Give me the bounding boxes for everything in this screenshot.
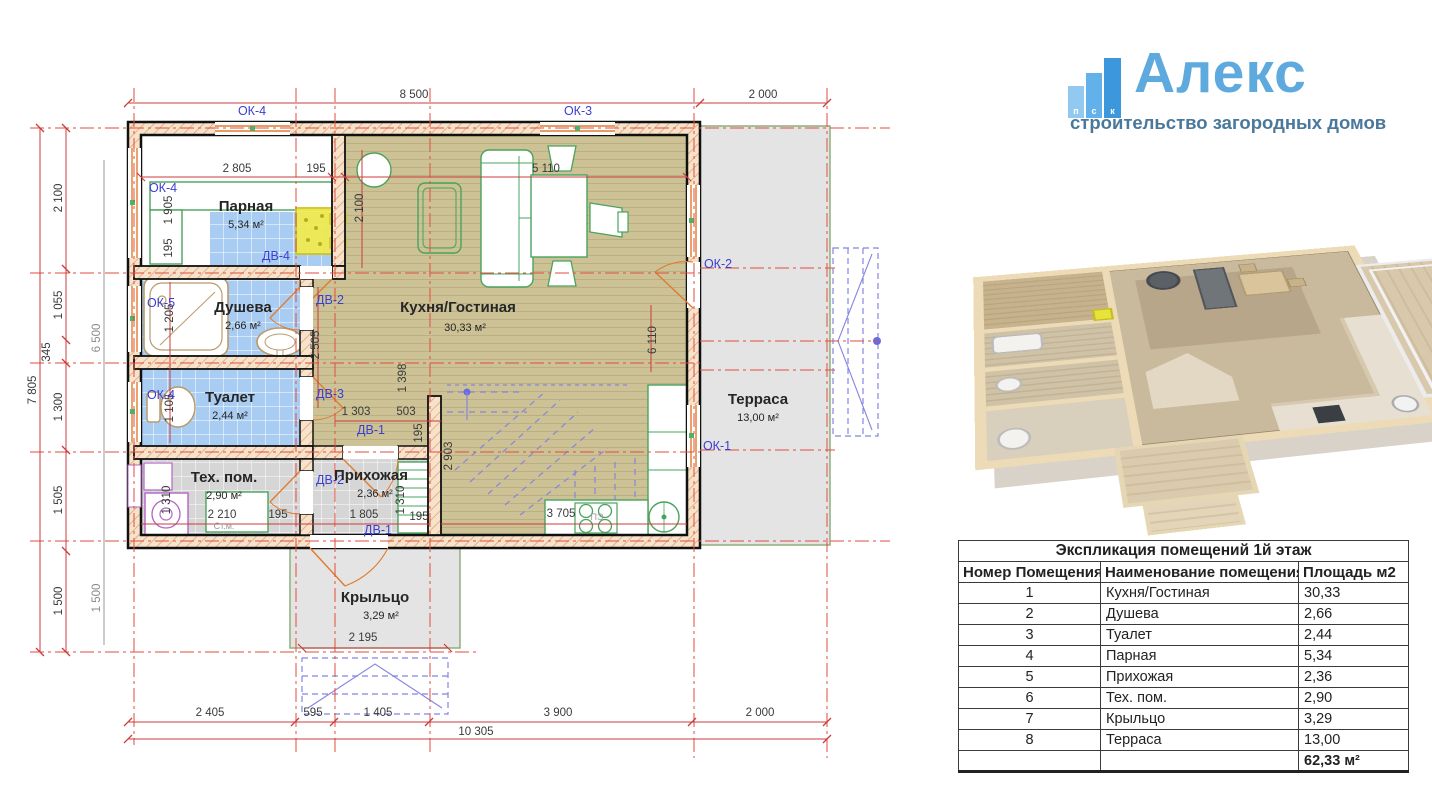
room-area: 2,36 м² xyxy=(357,488,393,500)
psk-logo-icon: п с к xyxy=(1068,56,1124,118)
room-area: 30,33 м² xyxy=(444,322,486,334)
company-name: Алекс xyxy=(1134,40,1307,106)
room-area: 2,44 м² xyxy=(212,410,248,422)
table-row: 6 Тех. пом. 2,90 xyxy=(959,688,1409,709)
3d-stairs xyxy=(1142,350,1239,409)
company-logo: п с к Алекс строительство загородных дом… xyxy=(1064,52,1404,142)
house-3d-preview xyxy=(948,148,1432,538)
roof-outline xyxy=(833,248,878,436)
label-dv1: ДВ-1 xyxy=(357,423,385,437)
room-name: Кухня/Гостиная xyxy=(400,299,516,316)
dim-label: 8 500 xyxy=(400,89,429,101)
room-name: Парная xyxy=(219,198,273,215)
dim-label: 1 500 xyxy=(91,584,103,613)
room-name: Тех. пом. xyxy=(191,469,258,486)
dim-label: 2 805 xyxy=(223,163,252,175)
dim-label: 6 500 xyxy=(91,324,103,353)
room-area: 13,00 м² xyxy=(737,412,779,424)
dim-label: 7 805 xyxy=(27,376,39,405)
dim-label: 503 xyxy=(396,406,415,418)
table-row: 8 Терраса 13,00 xyxy=(959,730,1409,751)
dim-label: 195 xyxy=(306,163,325,175)
table-row: 3 Туалет 2,44 xyxy=(959,625,1409,646)
dim-label: 2 100 xyxy=(354,194,366,223)
dim-label: 2 210 xyxy=(208,509,237,521)
window-ok3-top xyxy=(540,122,615,135)
room-area: 2,90 м² xyxy=(206,490,242,502)
dim-label: 1 905 xyxy=(163,196,175,225)
dim-label: 2 100 xyxy=(53,184,65,213)
room-area: 2,66 м² xyxy=(225,320,261,332)
dim-label: 195 xyxy=(163,238,175,257)
col-header-area: Площадь м2 xyxy=(1299,562,1409,583)
label-ok4: ОК-4 xyxy=(149,181,177,195)
col-header-name: Наименование помещения xyxy=(1101,562,1299,583)
dim-label: 195 xyxy=(409,511,428,523)
dim-label: 2 195 xyxy=(349,632,378,644)
table-row: 7 Крыльцо 3,29 xyxy=(959,709,1409,730)
table-row: 5 Прихожая 2,36 xyxy=(959,667,1409,688)
dining-table xyxy=(531,175,587,257)
table-title: Экспликация помещений 1й этаж xyxy=(959,541,1409,562)
dim-label: 5 110 xyxy=(532,163,560,175)
col-header-number: Номер Помещения xyxy=(959,562,1101,583)
room-name: Туалет xyxy=(205,389,255,406)
room-name: Душева xyxy=(214,299,272,316)
company-tagline: строительство загородных домов xyxy=(1070,112,1386,134)
table-header-row: Номер Помещения Наименование помещения П… xyxy=(959,562,1409,583)
bathtub xyxy=(144,277,228,356)
total-area: 62,33 м² xyxy=(1299,751,1409,772)
table-row: 2 Душева 2,66 xyxy=(959,604,1409,625)
dim-label: 195 xyxy=(268,509,287,521)
dim-label: 2 405 xyxy=(196,707,225,719)
3d-chair xyxy=(1287,278,1307,288)
3d-sauna-stove xyxy=(1092,308,1114,321)
label-ok5: ОК-5 xyxy=(147,296,175,310)
label-ok4: ОК-4 xyxy=(147,388,175,402)
dim-label: 1 505 xyxy=(53,486,65,515)
terrace xyxy=(700,126,830,545)
dim-label: 2 000 xyxy=(749,89,778,101)
dim-label: 195 xyxy=(413,423,425,442)
dim-label: 345 xyxy=(41,342,53,361)
table-row: 1 Кухня/Гостиная 30,33 xyxy=(959,583,1409,604)
dim-label: 1 300 xyxy=(53,393,65,422)
dim-label: 1 303 xyxy=(342,406,371,418)
label-ok2: ОК-2 xyxy=(704,257,732,271)
label-ok3: ОК-3 xyxy=(564,104,592,118)
dim-label: 2 505 xyxy=(310,331,322,360)
sofa xyxy=(481,150,533,287)
dim-label: 3 900 xyxy=(544,707,573,719)
dim-label: 1 055 xyxy=(53,291,65,320)
porch-steps xyxy=(302,658,448,714)
label-ok1: ОК-1 xyxy=(703,439,731,453)
3d-chair xyxy=(1238,263,1257,272)
dim-label: 1 310 xyxy=(395,486,407,515)
dim-label: 6 110 xyxy=(647,326,659,354)
dim-label: 2 000 xyxy=(746,707,775,719)
room-name: Крыльцо xyxy=(341,589,409,606)
window-ok4-top xyxy=(215,122,290,135)
dim-label: 1 500 xyxy=(53,587,65,616)
washer-note: Ст.м. xyxy=(214,521,235,531)
floor-plan: 8 500 2 000 7 805 2 100 1 055 345 1 300 … xyxy=(0,0,900,797)
label-dv1: ДВ-1 xyxy=(364,523,392,537)
room-area: 5,34 м² xyxy=(228,219,264,231)
armchair xyxy=(590,203,622,237)
dim-label: 1 398 xyxy=(397,364,409,393)
label-dv2: ДВ-2 xyxy=(316,293,344,307)
table-row: 4 Парная 5,34 xyxy=(959,646,1409,667)
dim-label: 10 305 xyxy=(458,726,493,738)
stove-note: ПЭ xyxy=(591,512,604,522)
dim-label: 1 405 xyxy=(364,707,393,719)
room-name: Прихожая xyxy=(334,467,408,484)
dim-label: 2 903 xyxy=(443,442,455,471)
table-total-row: 62,33 м² xyxy=(959,751,1409,772)
label-ok4: ОК-4 xyxy=(238,104,266,118)
dim-label: 3 705 xyxy=(547,508,576,520)
dim-label: 1 310 xyxy=(161,486,173,515)
room-name: Терраса xyxy=(728,391,789,408)
3d-table xyxy=(1237,270,1292,296)
label-dv3: ДВ-3 xyxy=(316,387,344,401)
room-area: 3,29 м² xyxy=(363,610,399,622)
dim-label: 595 xyxy=(303,707,322,719)
page: 8 500 2 000 7 805 2 100 1 055 345 1 300 … xyxy=(0,0,1432,797)
dim-label: 1 805 xyxy=(350,509,379,521)
room-specification-table: Экспликация помещений 1й этаж Номер Поме… xyxy=(958,540,1409,773)
label-dv4: ДВ-4 xyxy=(262,249,290,263)
